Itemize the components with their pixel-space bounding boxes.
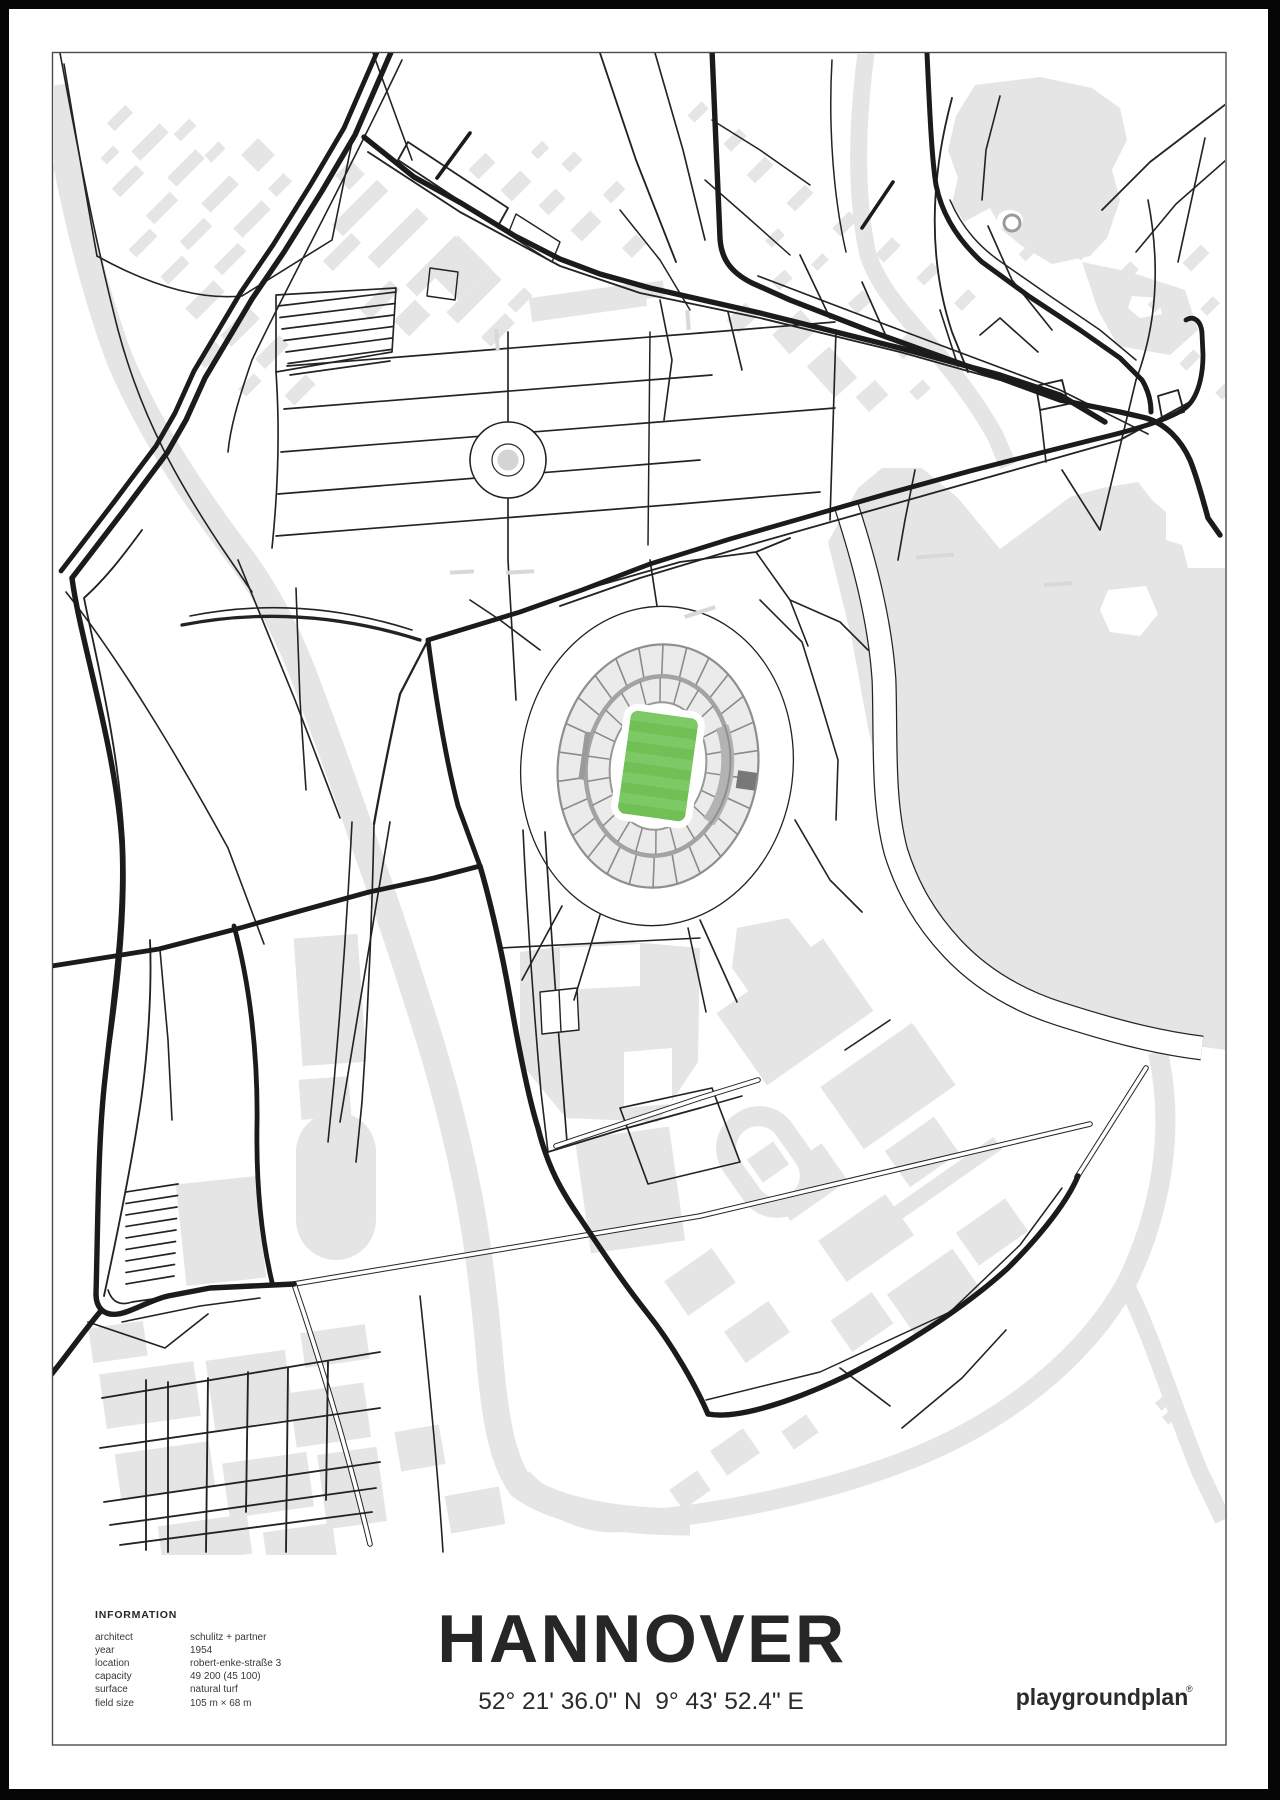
- svg-text:architect: architect: [95, 1632, 133, 1643]
- svg-text:location: location: [95, 1658, 129, 1669]
- svg-text:52° 21' 36.0" N 9° 43' 52.4": 52° 21' 36.0" N 9° 43' 52.4" E: [478, 1688, 804, 1715]
- svg-text:INFORMATION: INFORMATION: [95, 1609, 177, 1621]
- svg-text:robert-enke-straße 3: robert-enke-straße 3: [190, 1658, 282, 1669]
- svg-text:natural turf: natural turf: [190, 1684, 238, 1695]
- svg-text:field size: field size: [95, 1698, 134, 1709]
- svg-text:1954: 1954: [190, 1645, 213, 1656]
- svg-text:HANNOVER: HANNOVER: [437, 1601, 846, 1677]
- svg-text:year: year: [95, 1645, 115, 1656]
- svg-text:surface: surface: [95, 1684, 128, 1695]
- svg-text:49 200 (45 100): 49 200 (45 100): [190, 1671, 261, 1682]
- svg-text:105 m × 68 m: 105 m × 68 m: [190, 1698, 251, 1709]
- svg-text:®: ®: [1186, 1684, 1193, 1694]
- svg-text:capacity: capacity: [95, 1671, 132, 1682]
- svg-text:schulitz + partner: schulitz + partner: [190, 1632, 267, 1643]
- svg-text:playgroundplan: playgroundplan: [1016, 1684, 1189, 1710]
